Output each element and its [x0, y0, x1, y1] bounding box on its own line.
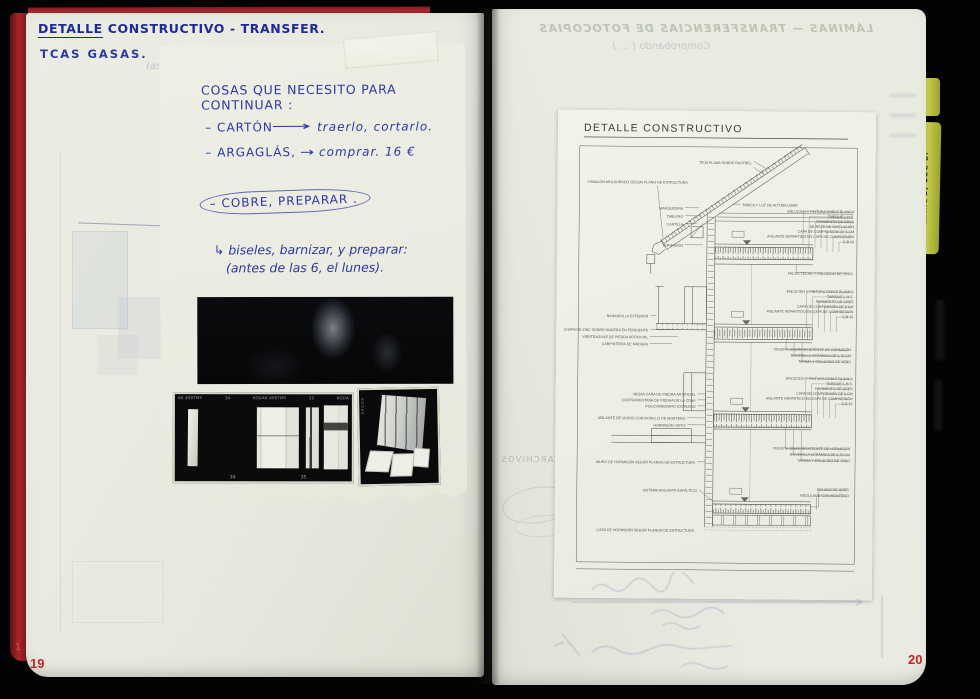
drawing-label: SOLADO DE GRES — [817, 488, 850, 492]
taped-note: COSAS QUE NECESITO PARA CONTINUAR : – CA… — [159, 43, 467, 508]
drawing-label: TABLERO — [667, 215, 684, 219]
film-single-frame-print: KODAK — [357, 387, 441, 487]
ghost-plan-block — [72, 231, 128, 329]
negative-frame — [324, 405, 348, 469]
negative-frame — [188, 409, 199, 466]
fore-edge-ghost-mark — [934, 380, 942, 430]
note-title: COSAS QUE NECESITO PARA CONTINUAR : — [201, 81, 465, 112]
drawing-label: POLICARBONATO EXTRUIDO — [645, 404, 695, 408]
drawing-label: HORMIGÓN VISTO — [653, 422, 685, 427]
drawing-label: PAVIMENTO DE GRES — [815, 387, 853, 391]
drawing-label: CAPA DE COMPRESIÓN DE 5 CM — [797, 304, 853, 309]
drawing-label: CHAPA DE ZINC SOBRE MADERA EN PENDIENTE — [564, 328, 649, 333]
detail-sheet: DETALLE CONSTRUCTIVO — [554, 110, 876, 601]
drawing-label: CONTRAVENTANA DE PIEDRA DE LA ZONA — [622, 398, 696, 403]
heading-rest: CONSTRUCTIVO - TRANSFER. — [103, 21, 325, 36]
drawing-label: CAPA DE COMPRESIÓN DE 5 CM — [796, 391, 852, 396]
page-number-left: 19 — [30, 656, 44, 671]
left-page: DETALLE CONSTRUCTIVO - TRANSFER. TCAS GA… — [26, 13, 484, 677]
note-item-argaglas: – ARGAGLÁS,→comprar. 16 € — [205, 144, 415, 159]
ghost-plan-block — [72, 561, 164, 623]
drawing-label: TEJA PLANA SOBRE RASTREL — [699, 161, 751, 165]
photo-light-patch — [412, 447, 430, 467]
film-frame-number: 35 — [301, 475, 307, 480]
drawing-label: SISTEMA AISLANTE ASFÁLTICO — [643, 488, 697, 492]
drawing-label: AISLANTE REPARTIDO EN CAPA DE COMPRESIÓN — [766, 308, 853, 314]
hand-arrow-icon: → — [300, 145, 316, 159]
drawing-label: AISLANTE REPARTIDO EN CAPA DE COMPRESIÓN — [766, 395, 853, 401]
right-page: LÁMINAS — TRANSFERENCIAS DE FOTOCOPIAS C… — [492, 9, 926, 685]
heading-underlined-word: DETALLE — [38, 21, 103, 38]
ghost-showthrough-subtitle: Comprobando ( … ) — [612, 41, 710, 52]
film-edge-text: KODAK — [360, 398, 364, 415]
drawing-label: MEDIA CAÑA DE PIEDRA ARTIFICIAL — [633, 391, 695, 397]
drawing-label: BARANDILLA EXTERIOR — [607, 314, 649, 318]
drawing-label: TABIQUE L.H.S. — [828, 215, 855, 219]
ghost-plan-line — [60, 153, 61, 633]
drawing-label: CARPINTERÍA DE MADERA — [602, 342, 649, 346]
note-item-carton: – CARTÓN⟶traerlo, cortarlo. — [205, 119, 433, 134]
page-number-right: 20 — [908, 652, 922, 667]
drawing-label: HORMIGÓN — [663, 243, 684, 248]
ghost-showthrough-archivos: ARCHIVOS — [500, 455, 553, 464]
ghost-showthrough-title: LÁMINAS — TRANSFERENCIAS DE FOTOCOPIAS — [538, 22, 873, 35]
drawing-label: CARTELA — [667, 223, 684, 227]
drawing-label: PAVIMENTO DE GRES — [816, 220, 854, 224]
drawing-label: C.B 16 — [843, 240, 854, 244]
page-number-partial: 1 — [15, 641, 21, 653]
drawing-label: TARIMA Y ENLUCIDO DE YESO — [797, 459, 850, 463]
notebook-photo: …ANDO, LOC 8. DETALLE CONSTRUCTIVO - TRA… — [0, 0, 980, 699]
film-frame-number: 35 — [309, 395, 315, 400]
drawing-label: CANALÓN MOLDURADO SEGÚN PLANO DE ESTRUCT… — [587, 179, 688, 185]
film-edge-segment: AK 400TMY — [178, 395, 202, 400]
dark-photo-print — [197, 297, 453, 384]
note-item-cobre: – COBRE, PREPARAR . — [200, 190, 371, 214]
film-edge-text: AK 400TMY 3A KODAK 400TMY 35 KODA — [175, 395, 352, 400]
drawing-label: MARQUESINA — [659, 207, 684, 211]
film-edge-segment: KODA — [337, 395, 349, 400]
note-followup-line1: ↳ biseles, barnizar, y preparar: — [214, 242, 408, 258]
photo-light-patch — [365, 450, 394, 472]
drawing-label: REGULADO CON MORTERO — [800, 494, 849, 498]
photo-light-patch — [390, 453, 415, 476]
ghost-mark — [890, 94, 916, 97]
photo-door-image — [376, 394, 427, 453]
construction-detail-drawing: TEJA PLANA SOBRE RASTREL CANALÓN MOLDURA… — [554, 110, 876, 601]
ghost-mark — [890, 114, 916, 117]
drawing-label: MURO DE HORMIGÓN SEGÚN PLANOS DE ESTRUCT… — [596, 459, 696, 465]
drawing-label: TABIQUE L.H.S. — [826, 382, 853, 386]
drawing-labels: TEJA PLANA SOBRE RASTREL CANALÓN MOLDURA… — [562, 160, 855, 535]
ghost-mark — [890, 134, 916, 137]
note-followup-line2: (antes de las 6, el lunes). — [226, 260, 384, 276]
film-frame-number: 34 — [230, 475, 236, 480]
fore-edge-ghost-mark — [936, 300, 944, 360]
note-item-label: – ARGAGLÁS, — [205, 145, 296, 159]
drawing-label: AISLANTE REPARTIDO EN CAPA DE COMPRESIÓN — [767, 233, 854, 239]
drawing-label: BOVEDILLA CERÁMICA DE 0,70 CM — [791, 354, 851, 359]
drawing-label: VIGUETA SEMIRRESISTENTE DE HORMIGÓN — [773, 446, 851, 452]
film-frame-number: 3A — [225, 395, 231, 400]
hand-arrow-icon: ⟶ — [271, 119, 313, 133]
negative-frame — [306, 407, 319, 468]
drawing-label: CAPA DE COMPRESIÓN DE 5 CM — [798, 229, 854, 234]
page-heading: DETALLE CONSTRUCTIVO - TRANSFER. — [38, 21, 325, 36]
drawing-label: TARIMA Y ENLUCIDO DE YESO — [798, 360, 851, 364]
drawing-label: C.B 16 — [842, 315, 853, 319]
drawing-label: TABIQUE L.H.S. — [827, 295, 854, 299]
drawing-label: TABICA Y LUZ DE ALTURA LIBRE — [742, 203, 798, 207]
circled-annotation: – COBRE, PREPARAR . — [199, 187, 371, 216]
drawing-label: FALSO TECHO Y ENLUCIDO DE YESO — [788, 272, 853, 277]
film-contact-strip: AK 400TMY 3A KODAK 400TMY 35 KODA 34 35 — [173, 392, 354, 483]
page-subheading: TCAS GASAS. — [40, 47, 148, 61]
drawing-label: VIERTEAGUAS DE PIEDRA ARTIFICIAL — [582, 335, 648, 340]
ghost-plan-line — [78, 222, 172, 226]
film-edge-segment: KODAK 400TMY — [253, 395, 287, 400]
drawing-label: AISLANTE DE VIDRIO CON RODILLO DE MORTER… — [598, 416, 686, 421]
drawing-label: ENLUCIDO Y PINTURA DOBLE BLANCA — [787, 210, 855, 215]
drawing-label: ENLUCIDO Y PINTURA DOBLE BLANCA — [786, 377, 854, 382]
drawing-label: ENLUCIDO Y PINTURA DOBLE BLANCA — [787, 290, 855, 295]
drawing-label: MURETE DE NIVELACIÓN — [810, 224, 854, 229]
drawing-label: C.B 16 — [842, 402, 853, 406]
ghost-plan-block — [98, 335, 138, 375]
note-item-label: – CARTÓN — [205, 120, 273, 134]
note-item-action: comprar. 16 € — [319, 144, 416, 159]
drawing-label: PAVIMENTO DE GRES — [816, 300, 854, 304]
notebook-cover-edge-left — [10, 13, 26, 661]
note-item-action: traerlo, cortarlo. — [317, 119, 433, 134]
negative-frame-door — [257, 407, 299, 468]
drawing-label: VIGUETA SEMIRRESISTENTE DE HORMIGÓN — [774, 347, 852, 353]
drawing-label: LOSA DE HORMIGÓN SEGÚN PLANOS DE ESTRUCT… — [596, 527, 694, 533]
drawing-label: BOVEDILLA CERÁMICA DE 0,70 CM — [790, 453, 850, 458]
